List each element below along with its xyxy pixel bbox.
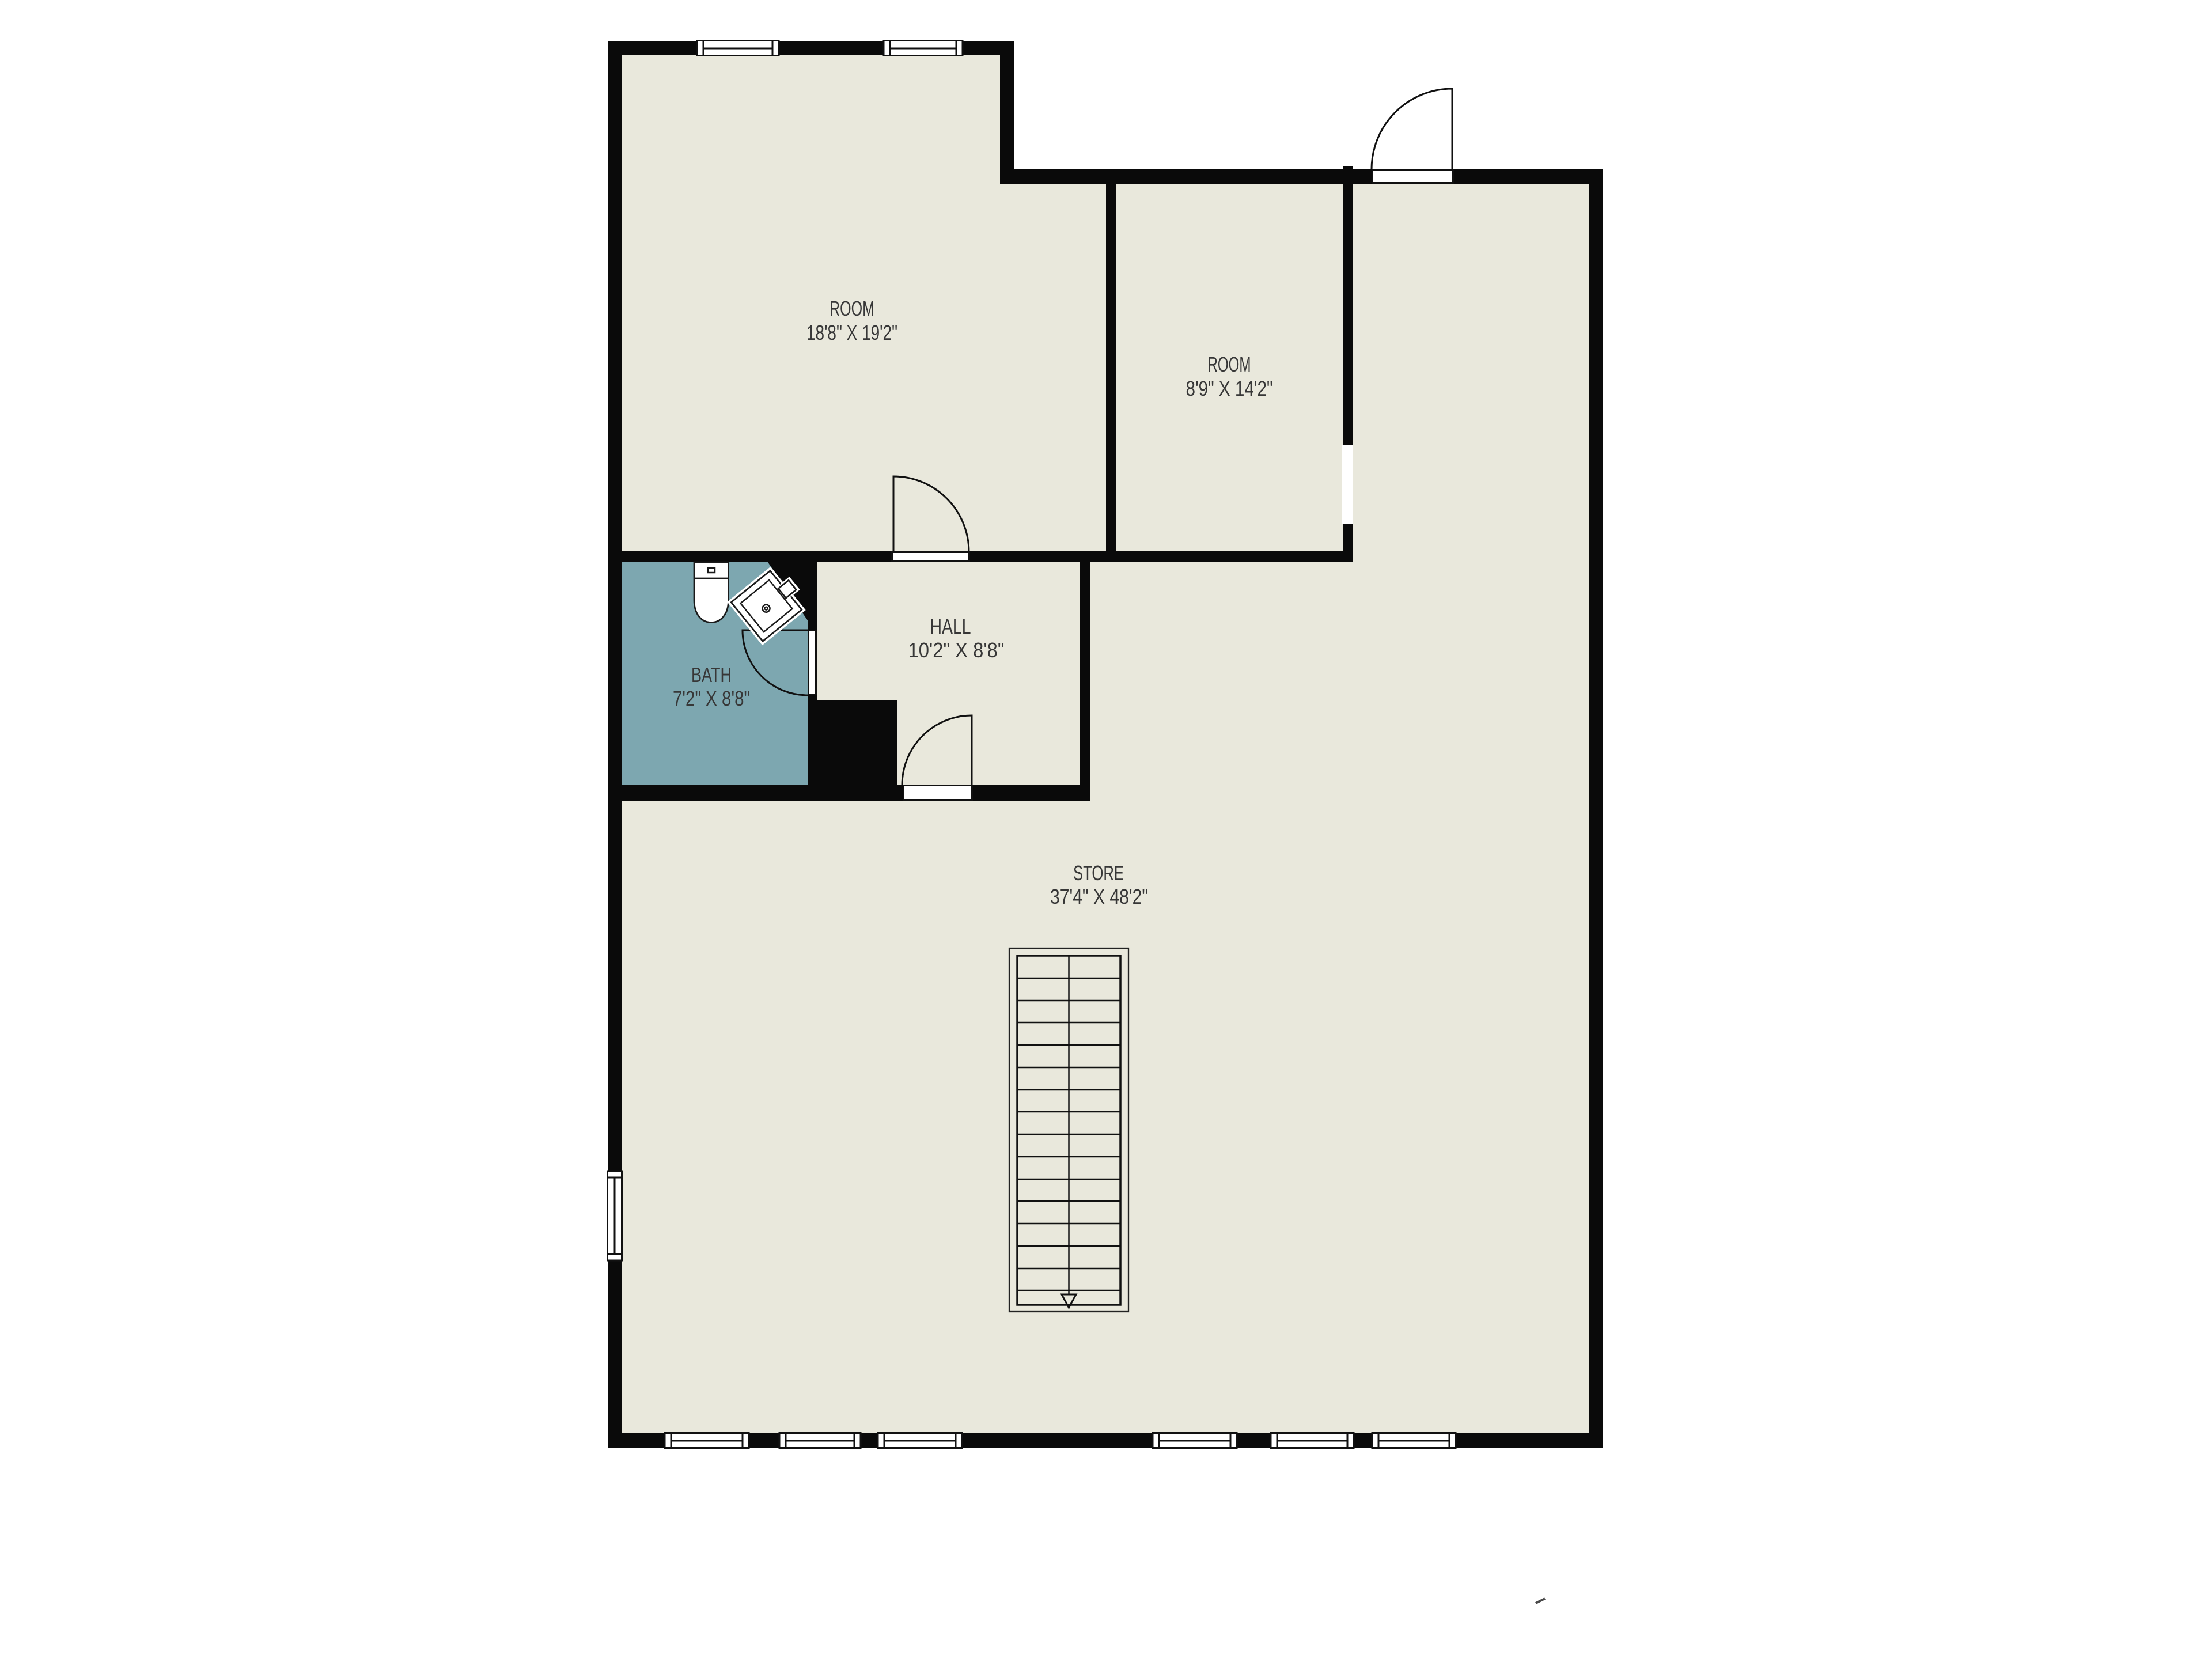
svg-text:37'4" X 48'2": 37'4" X 48'2" [1050, 885, 1148, 908]
svg-text:18'8" X 19'2": 18'8" X 19'2" [806, 321, 897, 344]
svg-text:8'9" X 14'2": 8'9" X 14'2" [1186, 377, 1273, 400]
svg-text:7'2" X 8'8": 7'2" X 8'8" [673, 687, 750, 710]
svg-text:ROOM: ROOM [1208, 353, 1251, 376]
svg-text:ROOM: ROOM [829, 297, 874, 320]
svg-text:STORE: STORE [1073, 861, 1124, 885]
svg-text:HALL: HALL [930, 615, 971, 638]
svg-text:BATH: BATH [691, 663, 732, 687]
svg-text:10'2" X 8'8": 10'2" X 8'8" [908, 638, 1005, 662]
